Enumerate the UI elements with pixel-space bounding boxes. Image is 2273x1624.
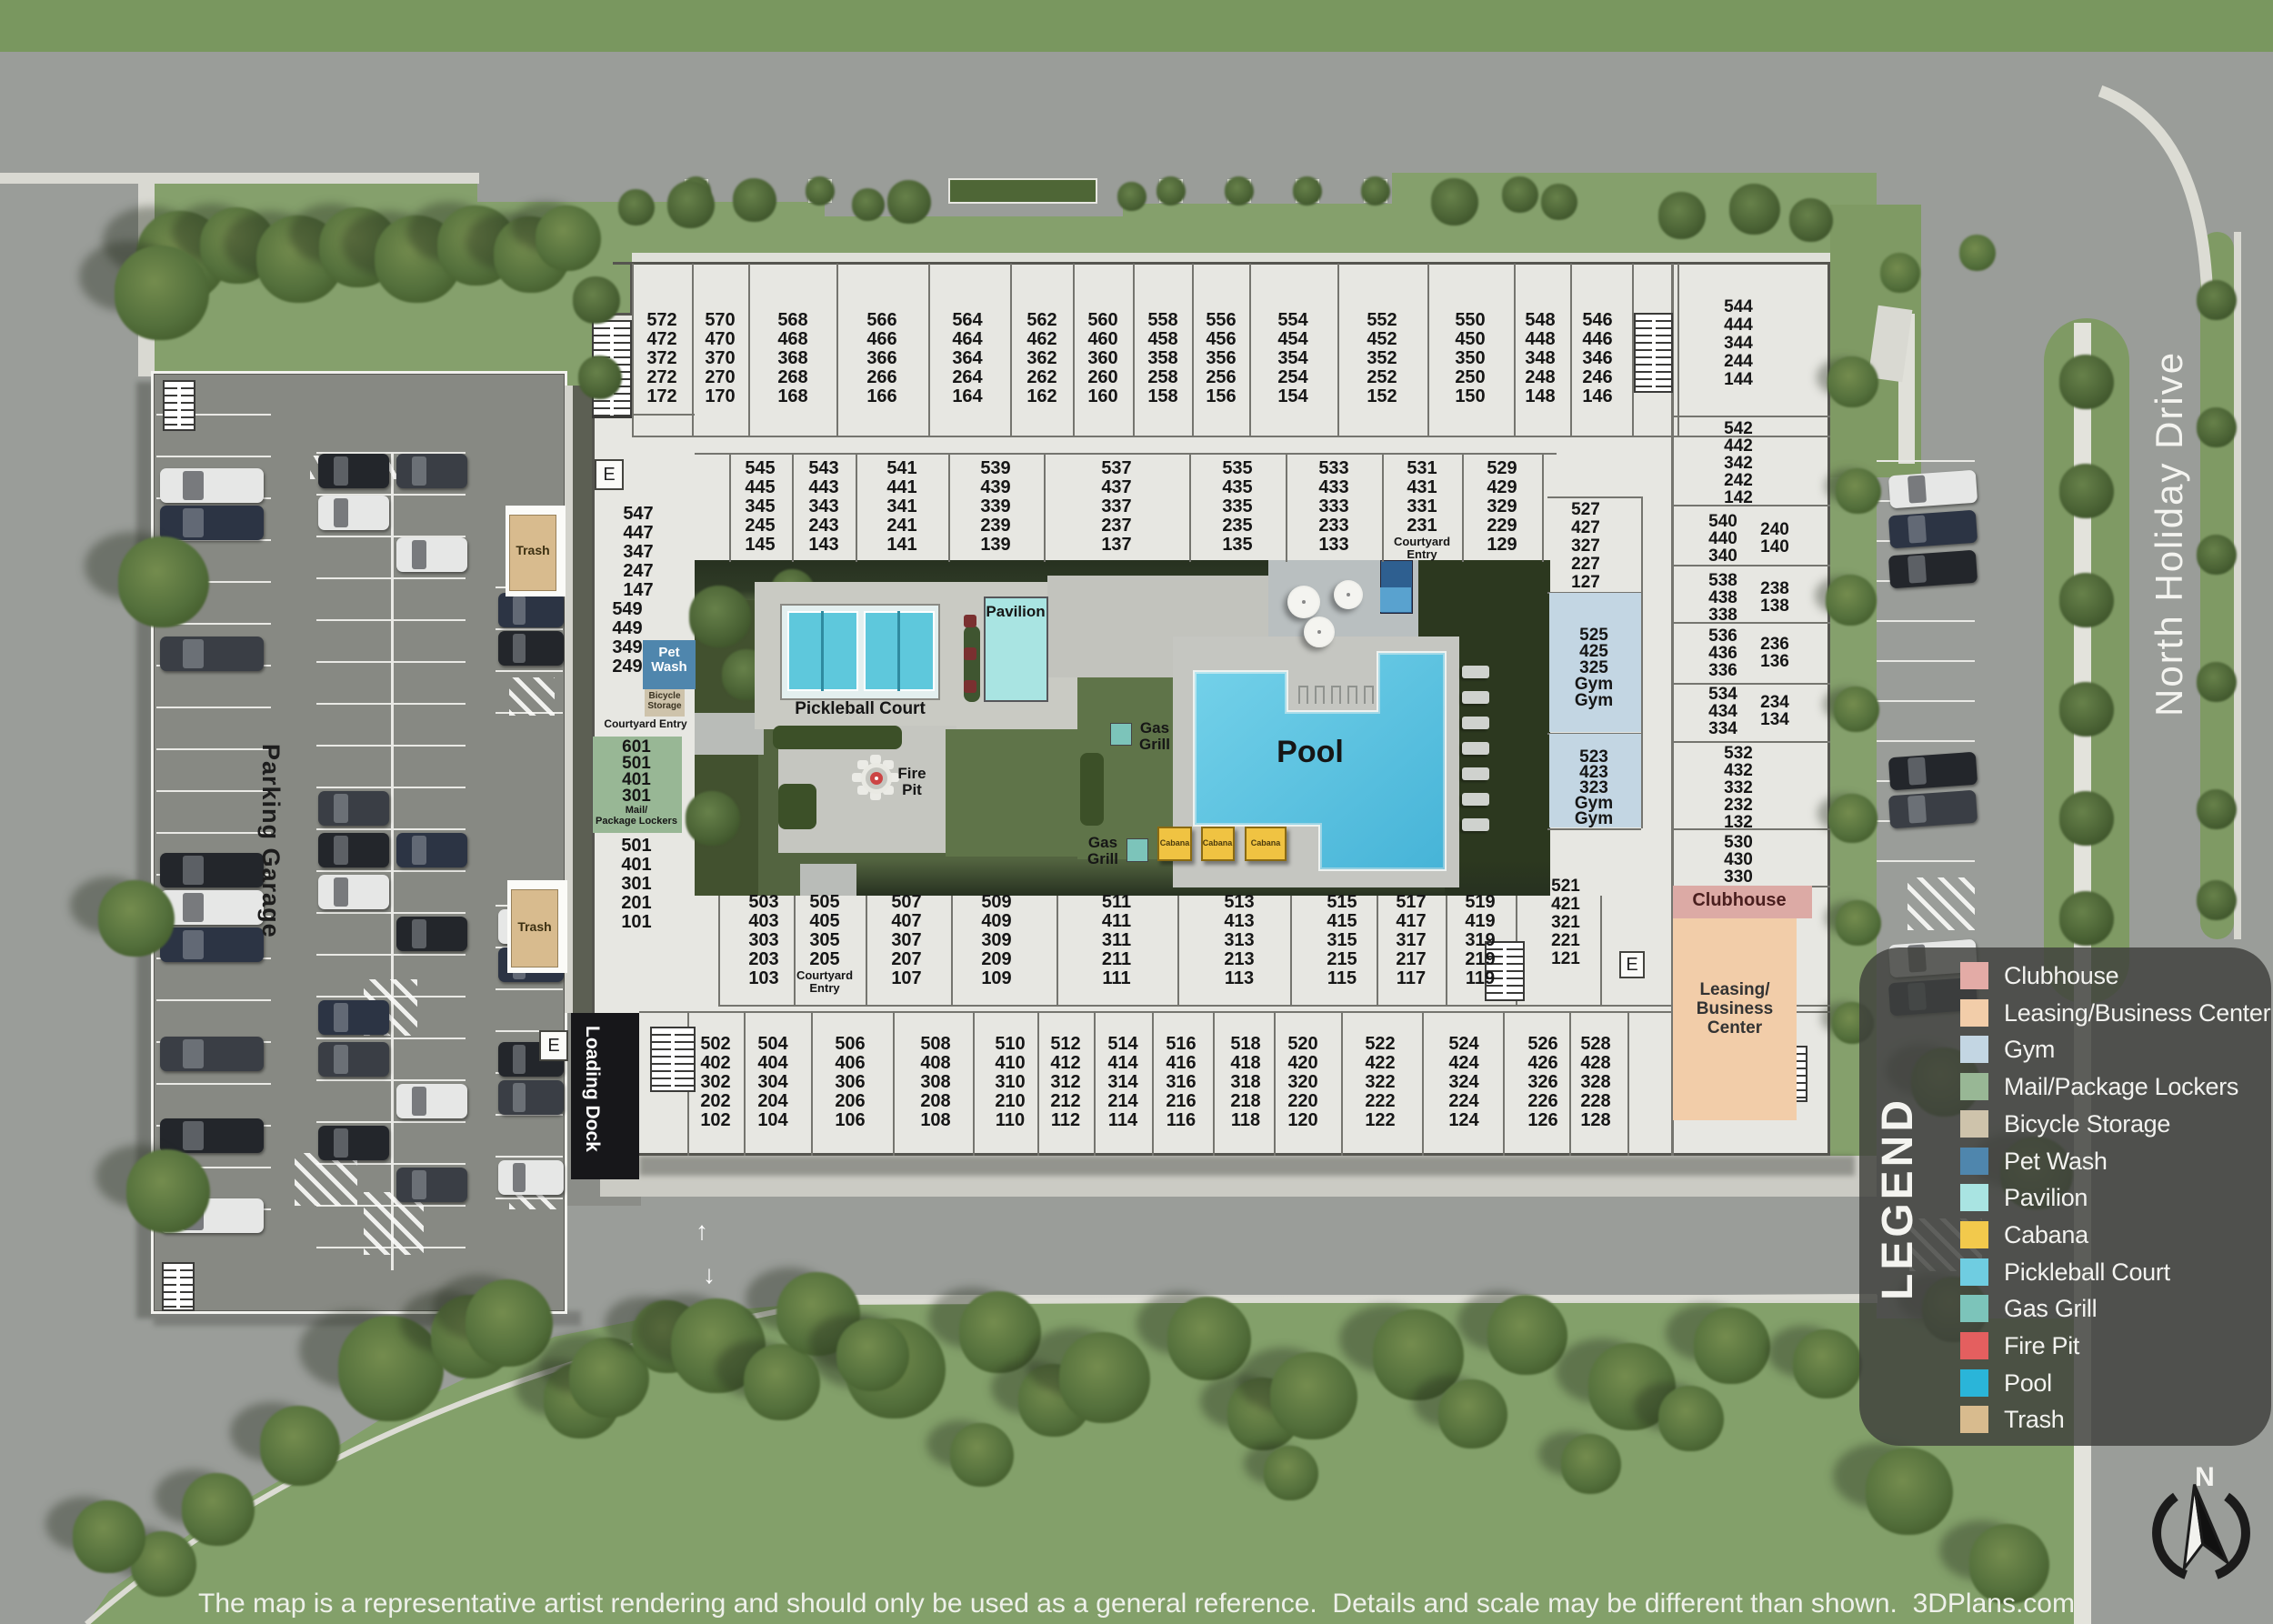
svg-text:N: N — [2195, 1462, 2215, 1492]
